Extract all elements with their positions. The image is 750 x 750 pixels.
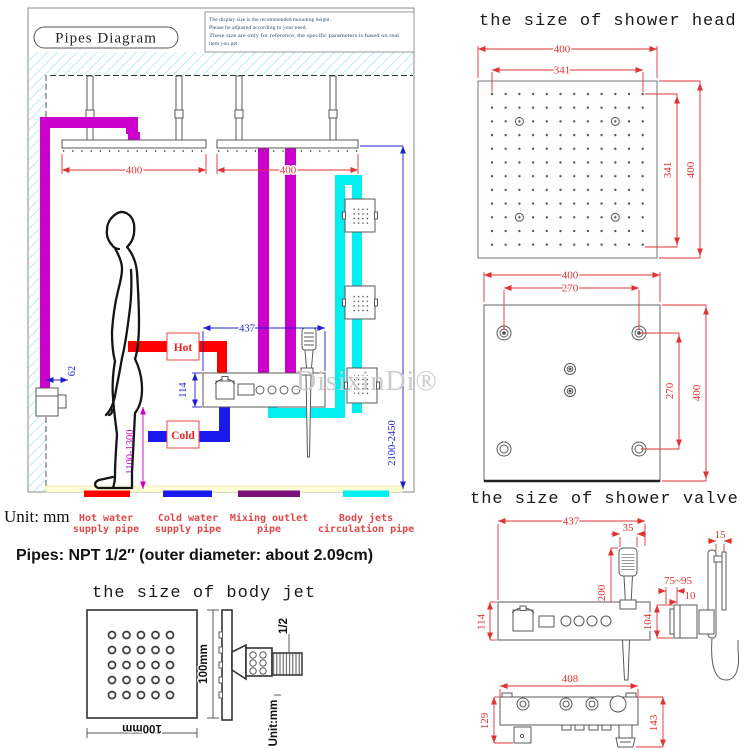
legend-hot-line1: Hot water: [79, 513, 133, 524]
body-jet-size-section: the size of body jet 100mm 1/2: [87, 584, 316, 746]
head-front-nozzle-height-dim: 341: [662, 162, 674, 179]
valve-side-view: 15 75~95 10 104: [642, 529, 739, 680]
head-back-outer-height-dim: 400: [691, 384, 703, 401]
pipes-diagram-panel: The display size is the recommended moun…: [28, 8, 438, 492]
valve-front-view: 437 35 200 114: [476, 516, 651, 681]
hot-pipe-swatch: [84, 491, 130, 498]
cold-pipe-swatch: [163, 491, 212, 498]
shower-valve-title: the size of shower valve: [470, 490, 739, 509]
shower-head-front-view: 400 341 341 400: [478, 44, 700, 259]
body-jet-width-label: 100mm: [122, 722, 162, 734]
note-line-1: The display size is the recommended moun…: [209, 17, 331, 23]
valve-height-dim: 114: [178, 382, 189, 398]
valve-panel-width-dim: 437: [563, 516, 580, 528]
shower-head-title: the size of shower head: [479, 12, 737, 31]
valve-side-height-dim: 104: [642, 613, 654, 630]
head-front-outer-width-dim: 400: [554, 44, 571, 56]
body-jet-unit-label: Unit:mm: [268, 700, 280, 747]
legend-cold-line2: supply pipe: [155, 523, 221, 535]
legend-mixing-line1: Mixing outlet: [230, 512, 308, 524]
head-back-hole-width-dim: 270: [562, 283, 579, 295]
diagram-title: Pipes Diagram: [55, 31, 157, 47]
bracket-offset-dim: 15: [715, 529, 727, 541]
body-jet-holes: [105, 628, 178, 703]
head-floor-height-dim: 2100-2450: [387, 420, 398, 466]
body-jet-height-label: 100mm: [198, 644, 210, 684]
body-jet-thread-label: 1/2: [278, 618, 290, 634]
note-box: The display size is the recommended moun…: [205, 12, 414, 52]
diagram-canvas: The display size is the recommended moun…: [0, 0, 750, 750]
ceiling-hatch: [29, 52, 413, 75]
head-back-hole-height-dim: 270: [664, 382, 676, 399]
shower-head-back-view: 400 270 270 400: [484, 270, 706, 482]
screenshot-root: The display size is the recommended moun…: [0, 0, 750, 750]
body-jet-1: [343, 199, 378, 232]
pipes-spec-note: Pipes: NPT 1/2″ (outer diameter: about 2…: [16, 547, 373, 564]
head-front-outer-height-dim: 400: [685, 161, 697, 178]
head-front-nozzle-width-dim: 341: [554, 65, 571, 77]
legend-hot-line2: supply pipe: [73, 523, 139, 535]
right-head-width-dim: 400: [280, 165, 297, 177]
legend-bodyjet-line1: Body jets: [339, 512, 393, 524]
body-jet-width-dim: 100mm: [87, 722, 197, 738]
handshower-length-dim: 200: [596, 584, 608, 601]
bodyjet-pipe-swatch: [343, 491, 389, 498]
valve-width-dim: 437: [239, 324, 255, 335]
watermark: DisixinDi®: [296, 366, 438, 397]
legend: Unit: mm Hot water supply pipe Cold wate…: [4, 491, 414, 536]
body-jet-unit: Unit:mm: [268, 695, 281, 746]
left-head-width-dim: 400: [126, 165, 143, 177]
body-jet-2: [343, 286, 378, 319]
head-back-outer-width-dim: 400: [562, 270, 579, 282]
body-jet-title: the size of body jet: [92, 584, 316, 603]
legend-bodyjet-line2: circulation pipe: [318, 523, 414, 535]
valve-bottom-view: 408 129 143: [479, 673, 663, 747]
spout-offset-dim: 62: [67, 366, 78, 377]
valve-display: [238, 384, 254, 395]
valve-panel-height-dim: 114: [476, 613, 488, 630]
base-height-right-dim: 143: [648, 714, 660, 731]
plate-thickness-dim: 10: [685, 590, 697, 602]
hot-label: Hot: [174, 342, 193, 354]
body-jet-height-dim: 100mm: [198, 610, 219, 718]
legend-mixing-line2: pipe: [257, 523, 281, 535]
cold-label: Cold: [171, 430, 195, 442]
handshower-width-dim: 35: [623, 522, 635, 534]
mixing-pipe-swatch: [238, 491, 300, 498]
wall-depth-range-dim: 75~95: [664, 575, 692, 587]
unit-label: Unit: mm: [4, 507, 70, 526]
body-jet-side-view: 1/2: [219, 610, 302, 720]
note-line-3: These size are only for reference, the s…: [209, 32, 400, 39]
legend-cold-line1: Cold water: [158, 513, 218, 524]
base-width-dim: 408: [562, 673, 579, 685]
shower-head-size-section: the size of shower head 400 341 341 400: [478, 12, 737, 481]
diagram-title-pill: Pipes Diagram: [34, 27, 178, 48]
threaded-connector: [272, 653, 302, 675]
shower-valve-size-section: the size of shower valve 437 35 200: [470, 490, 739, 747]
note-line-2: Please be adjusted according to your nee…: [209, 25, 307, 31]
base-height-left-dim: 129: [479, 712, 491, 729]
note-line-4: item you get.: [209, 41, 239, 47]
